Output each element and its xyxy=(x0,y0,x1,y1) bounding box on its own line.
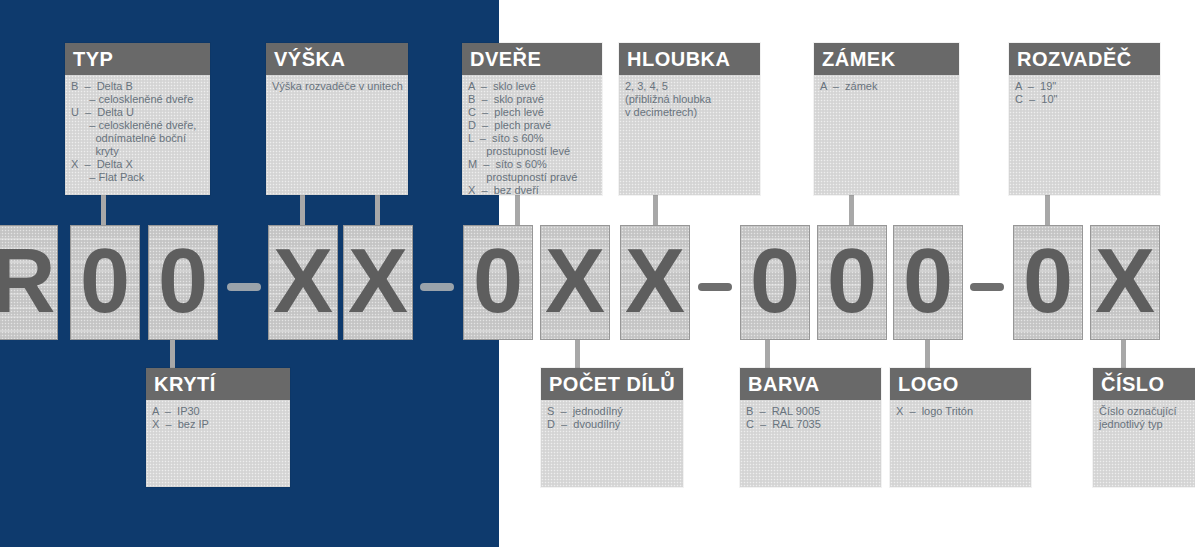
legend-title: DVEŘE xyxy=(462,43,602,75)
legend-box-kryti: KRYTÍ A – IP30 X – bez IP xyxy=(146,368,290,487)
code-char: X xyxy=(348,236,408,326)
legend-line: odnímatelné boční xyxy=(71,132,204,145)
connector-line xyxy=(101,195,106,225)
legend-line: X – Delta X xyxy=(71,158,204,171)
code-char-box: 0 xyxy=(740,225,810,340)
legend-line: D – dvoudílný xyxy=(547,418,677,431)
connector-line xyxy=(849,195,854,225)
legend-box-zamek: ZÁMEK A – zámek xyxy=(814,43,959,195)
legend-body: A – zámek xyxy=(814,75,959,195)
code-char-box: 0 xyxy=(70,225,140,340)
legend-line: X – logo Tritón xyxy=(896,405,1025,418)
legend-box-cislo: ČÍSLO Číslo označující jednotlivý typ xyxy=(1093,368,1195,487)
legend-line: A – sklo levé xyxy=(468,80,596,93)
legend-line: – celoskleněné dveře xyxy=(71,93,204,106)
code-char: 0 xyxy=(750,236,800,326)
code-char: 0 xyxy=(473,236,523,326)
legend-title: ROZVADĚČ xyxy=(1009,43,1160,75)
code-separator-dash xyxy=(420,283,454,291)
code-char-box: X xyxy=(268,225,338,340)
code-separator-dash xyxy=(227,283,261,291)
code-char-box: X xyxy=(620,225,690,340)
legend-title: HLOUBKA xyxy=(619,43,760,75)
legend-body: A – 19" C – 10" xyxy=(1009,75,1160,195)
legend-line: C – 10" xyxy=(1015,93,1154,106)
legend-title: KRYTÍ xyxy=(146,368,290,400)
product-code-diagram: TYP B – Delta B – celoskleněné dveře U –… xyxy=(0,0,1195,547)
legend-line: B – RAL 9005 xyxy=(746,405,875,418)
legend-body: X – logo Tritón xyxy=(890,400,1031,487)
legend-title: VÝŠKA xyxy=(266,43,408,75)
legend-line: – Flat Pack xyxy=(71,171,204,184)
legend-box-vyska: VÝŠKA Výška rozvaděče v unitech xyxy=(266,43,408,195)
connector-line xyxy=(170,340,175,368)
legend-line: B – sklo pravé xyxy=(468,93,596,106)
legend-line: A – IP30 xyxy=(152,405,284,418)
legend-body: B – Delta B – celoskleněné dveře U – Del… xyxy=(65,75,210,195)
code-char-box: R xyxy=(0,225,58,340)
legend-title: BARVA xyxy=(740,368,881,400)
legend-line: A – 19" xyxy=(1015,80,1154,93)
legend-line: C – RAL 7035 xyxy=(746,418,875,431)
legend-box-typ: TYP B – Delta B – celoskleněné dveře U –… xyxy=(65,43,210,195)
legend-line: D – plech pravé xyxy=(468,119,596,132)
connector-line xyxy=(300,195,305,225)
legend-box-dvere: DVEŘE A – sklo levé B – sklo pravé C – p… xyxy=(462,43,602,195)
legend-body: S – jednodílný D – dvoudílný xyxy=(541,400,683,487)
code-char: 0 xyxy=(158,236,208,326)
code-char-box: X xyxy=(1090,225,1160,340)
legend-title: POČET DÍLŮ xyxy=(541,368,683,400)
legend-line: Číslo označující xyxy=(1099,405,1189,418)
legend-line: M – síto s 60% xyxy=(468,158,596,171)
code-char: 0 xyxy=(80,236,130,326)
code-char-box: 0 xyxy=(893,225,963,340)
legend-line: B – Delta B xyxy=(71,80,204,93)
connector-line xyxy=(765,340,770,368)
code-char-box: 0 xyxy=(148,225,218,340)
connector-line xyxy=(925,340,930,368)
code-char: X xyxy=(545,236,605,326)
legend-line: prostupností pravé xyxy=(468,171,596,184)
legend-body: Výška rozvaděče v unitech xyxy=(266,75,408,195)
legend-line: jednotlivý typ xyxy=(1099,418,1189,431)
code-char: X xyxy=(1095,236,1155,326)
code-separator-dash xyxy=(698,283,732,291)
legend-line: C – plech levé xyxy=(468,106,596,119)
connector-line xyxy=(653,195,658,225)
legend-box-hloubka: HLOUBKA 2, 3, 4, 5 (přibližná hloubka v … xyxy=(619,43,760,195)
legend-box-logo: LOGO X – logo Tritón xyxy=(890,368,1031,487)
connector-line xyxy=(575,340,580,368)
legend-line: U – Delta U xyxy=(71,106,204,119)
legend-body: 2, 3, 4, 5 (přibližná hloubka v decimetr… xyxy=(619,75,760,195)
code-char-box: 0 xyxy=(463,225,533,340)
code-char-box: 0 xyxy=(817,225,887,340)
legend-box-pocet-dilu: POČET DÍLŮ S – jednodílný D – dvoudílný xyxy=(541,368,683,487)
code-char-box: X xyxy=(343,225,413,340)
code-char: R xyxy=(0,236,56,326)
legend-line: prostupností levé xyxy=(468,145,596,158)
legend-body: B – RAL 9005 C – RAL 7035 xyxy=(740,400,881,487)
legend-title: TYP xyxy=(65,43,210,75)
legend-line: S – jednodílný xyxy=(547,405,677,418)
connector-line xyxy=(1045,195,1050,225)
connector-line xyxy=(375,195,380,225)
legend-line: Výška rozvaděče v unitech xyxy=(272,80,402,93)
code-char-box: 0 xyxy=(1013,225,1083,340)
legend-line: v decimetrech) xyxy=(625,106,754,119)
legend-box-barva: BARVA B – RAL 9005 C – RAL 7035 xyxy=(740,368,881,487)
legend-line: 2, 3, 4, 5 xyxy=(625,80,754,93)
legend-line: X – bez IP xyxy=(152,418,284,431)
legend-title: ČÍSLO xyxy=(1093,368,1195,400)
legend-line: L – síto s 60% xyxy=(468,132,596,145)
code-char: 0 xyxy=(903,236,953,326)
legend-line: A – zámek xyxy=(820,80,953,93)
code-char: 0 xyxy=(827,236,877,326)
legend-body: A – sklo levé B – sklo pravé C – plech l… xyxy=(462,75,602,195)
code-char: X xyxy=(625,236,685,326)
legend-line: X – bez dveří xyxy=(468,184,596,197)
legend-line: kryty xyxy=(71,145,204,158)
legend-title: ZÁMEK xyxy=(814,43,959,75)
legend-body: A – IP30 X – bez IP xyxy=(146,400,290,487)
code-char-box: X xyxy=(540,225,610,340)
code-char: X xyxy=(273,236,333,326)
code-separator-dash xyxy=(970,283,1004,291)
connector-line xyxy=(1121,340,1126,368)
legend-body: Číslo označující jednotlivý typ xyxy=(1093,400,1195,487)
legend-box-rozvadec: ROZVADĚČ A – 19" C – 10" xyxy=(1009,43,1160,195)
legend-title: LOGO xyxy=(890,368,1031,400)
legend-line: (přibližná hloubka xyxy=(625,93,754,106)
code-char: 0 xyxy=(1023,236,1073,326)
connector-line xyxy=(515,195,520,225)
legend-line: – celoskleněné dveře, xyxy=(71,119,204,132)
